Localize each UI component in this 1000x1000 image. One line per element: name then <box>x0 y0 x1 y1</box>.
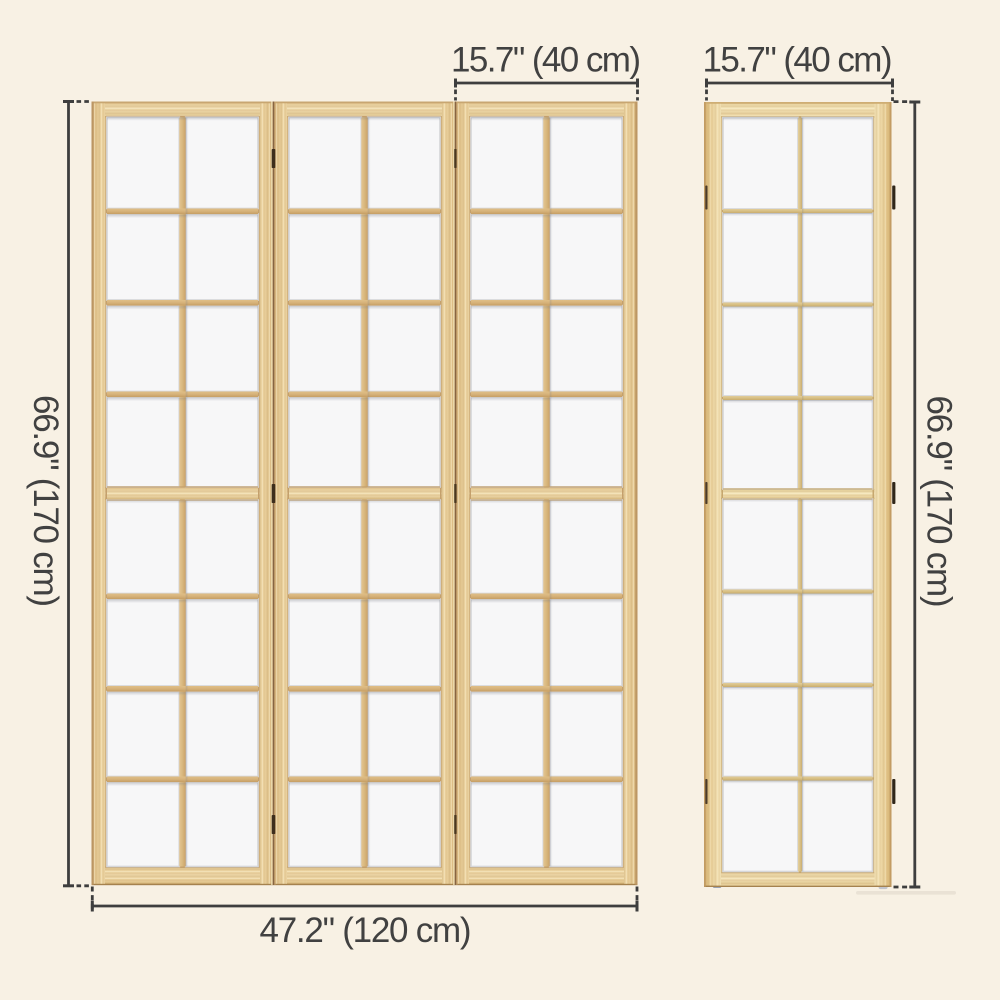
svg-text:15.7" (40 cm): 15.7" (40 cm) <box>703 41 893 80</box>
svg-text:66.9" (170 cm): 66.9" (170 cm) <box>26 395 65 607</box>
svg-text:66.9" (170 cm): 66.9" (170 cm) <box>920 396 959 608</box>
svg-text:47.2" (120 cm): 47.2" (120 cm) <box>260 911 472 950</box>
svg-text:15.7" (40 cm): 15.7" (40 cm) <box>451 41 641 80</box>
